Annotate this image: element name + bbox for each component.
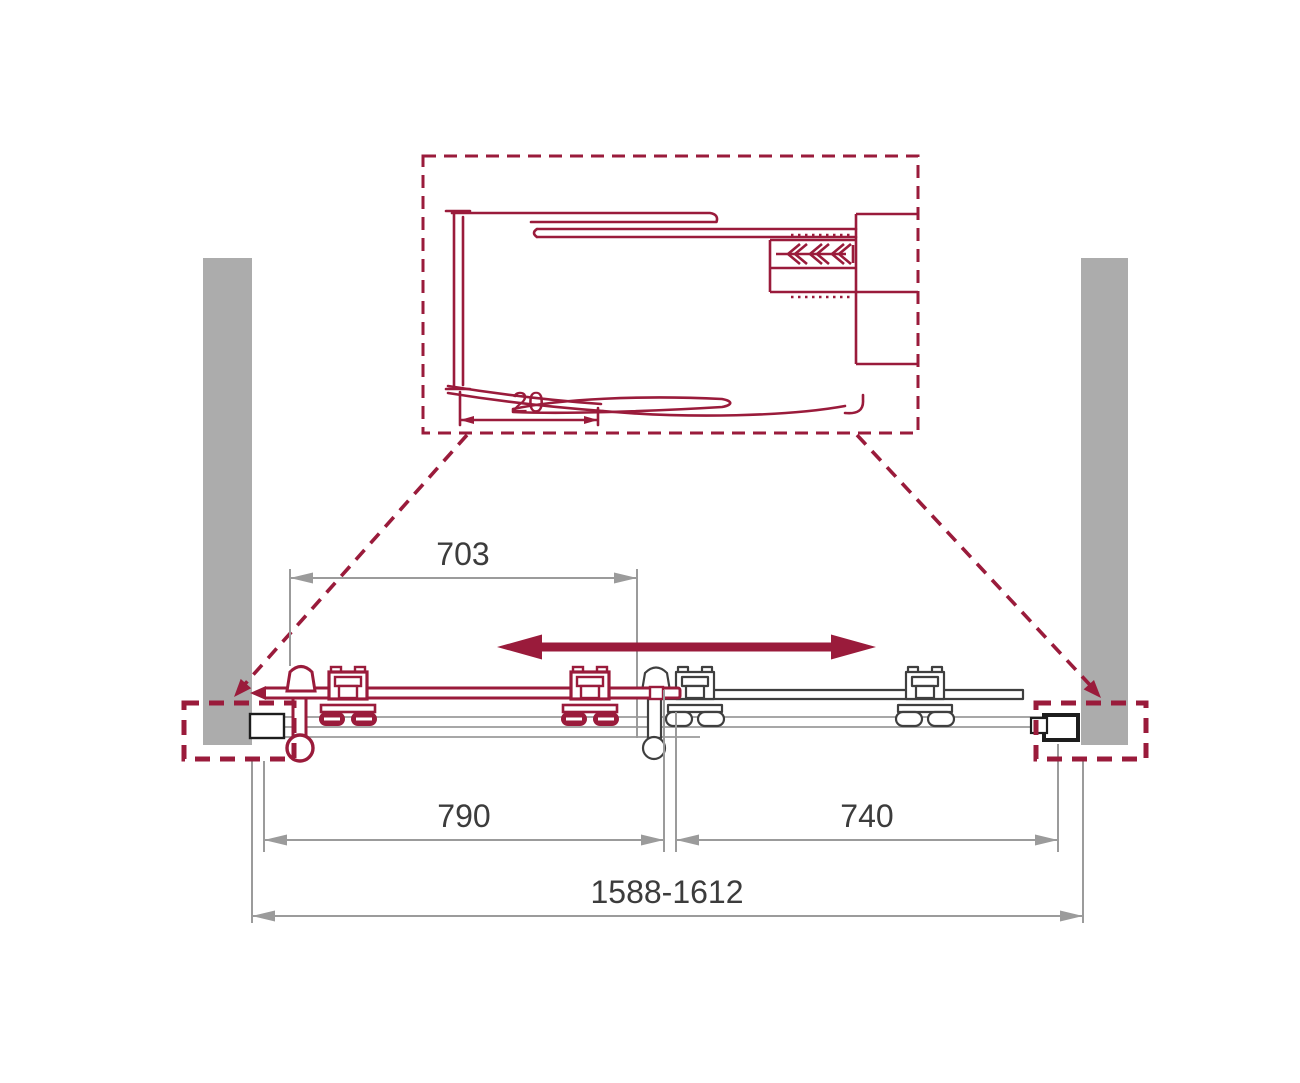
dim-arrow-left (252, 911, 275, 922)
dimension-label-740: 740 (840, 798, 893, 834)
dimension-label-703: 703 (436, 536, 489, 572)
roller-wheel (928, 712, 954, 726)
handle-ring (287, 735, 313, 761)
dim-arrow-left (676, 835, 699, 846)
installation-diagram-page: 20 703 (0, 0, 1300, 1083)
fixed-panel (642, 667, 1023, 759)
shower-door-installation-diagram: 20 703 (0, 0, 1300, 1083)
detail-wall-profile (856, 214, 918, 364)
fixed-glass-section (534, 229, 856, 237)
glass-clamp (650, 687, 663, 699)
dimension-label-790: 790 (437, 798, 490, 834)
dimension-label-overall: 1588-1612 (590, 874, 743, 910)
roller-wheel (666, 712, 692, 726)
left-wall-profile (250, 714, 284, 738)
left-wall (203, 258, 252, 745)
dim-arrow-right (614, 573, 637, 584)
dim-arrow-left (460, 416, 474, 424)
slide-direction-arrow (497, 635, 876, 660)
right-wall (1081, 258, 1128, 745)
detail-leader-right (857, 435, 1101, 698)
dimension-overall-width: 1588-1612 (252, 761, 1083, 923)
brush-seal-channel (770, 235, 918, 297)
detail-view: 20 (423, 156, 918, 433)
sliding-door (250, 667, 680, 762)
dim-arrow-right (641, 835, 664, 846)
detail-leader-left (234, 435, 467, 697)
dim-arrow-right (584, 416, 598, 424)
sliding-door-glass (264, 688, 680, 698)
handle-knob (287, 667, 315, 692)
roller-wheel (896, 712, 922, 726)
dim-arrow-left (290, 573, 313, 584)
roller-wheel (698, 712, 724, 726)
dim-arrow-right (1035, 835, 1058, 846)
profile-cross-section (446, 211, 918, 416)
fixed-panel-handle (642, 668, 670, 760)
door-glass-end-cap (446, 211, 470, 389)
dimension-fixed-panel-width: 740 (676, 712, 1058, 852)
gap-dimension: 20 (460, 387, 598, 425)
gap-dimension-label: 20 (512, 387, 544, 419)
dim-arrow-right (1060, 911, 1083, 922)
dim-arrow-left (264, 835, 287, 846)
top-channel (452, 213, 717, 222)
fixed-panel-glass (665, 690, 1023, 699)
glass-end-tip (250, 686, 266, 700)
handle-ring (643, 737, 665, 759)
detail-view-border (423, 156, 918, 433)
